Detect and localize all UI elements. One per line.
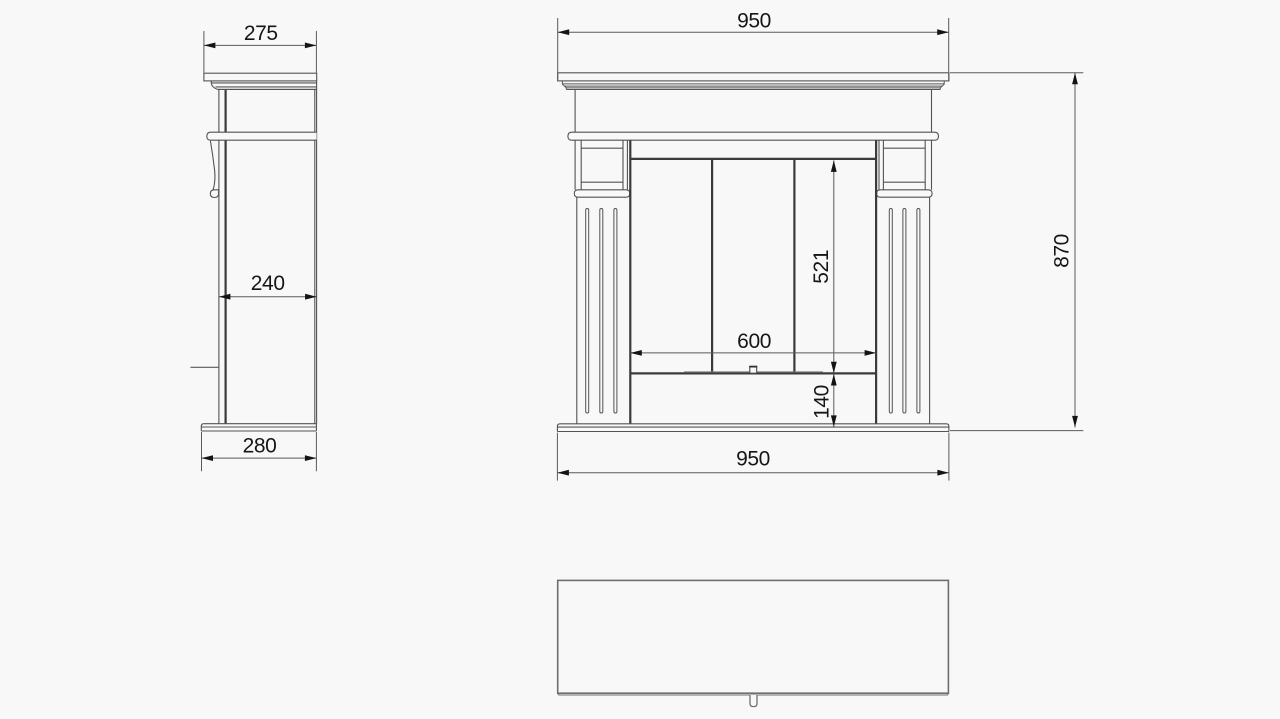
- svg-text:950: 950: [737, 9, 771, 32]
- svg-text:275: 275: [244, 22, 278, 45]
- svg-text:280: 280: [243, 434, 277, 457]
- svg-text:870: 870: [1050, 234, 1073, 268]
- svg-text:950: 950: [736, 447, 770, 470]
- svg-text:140: 140: [811, 385, 834, 419]
- svg-text:521: 521: [810, 250, 833, 284]
- svg-text:600: 600: [737, 330, 771, 353]
- svg-text:240: 240: [251, 272, 285, 295]
